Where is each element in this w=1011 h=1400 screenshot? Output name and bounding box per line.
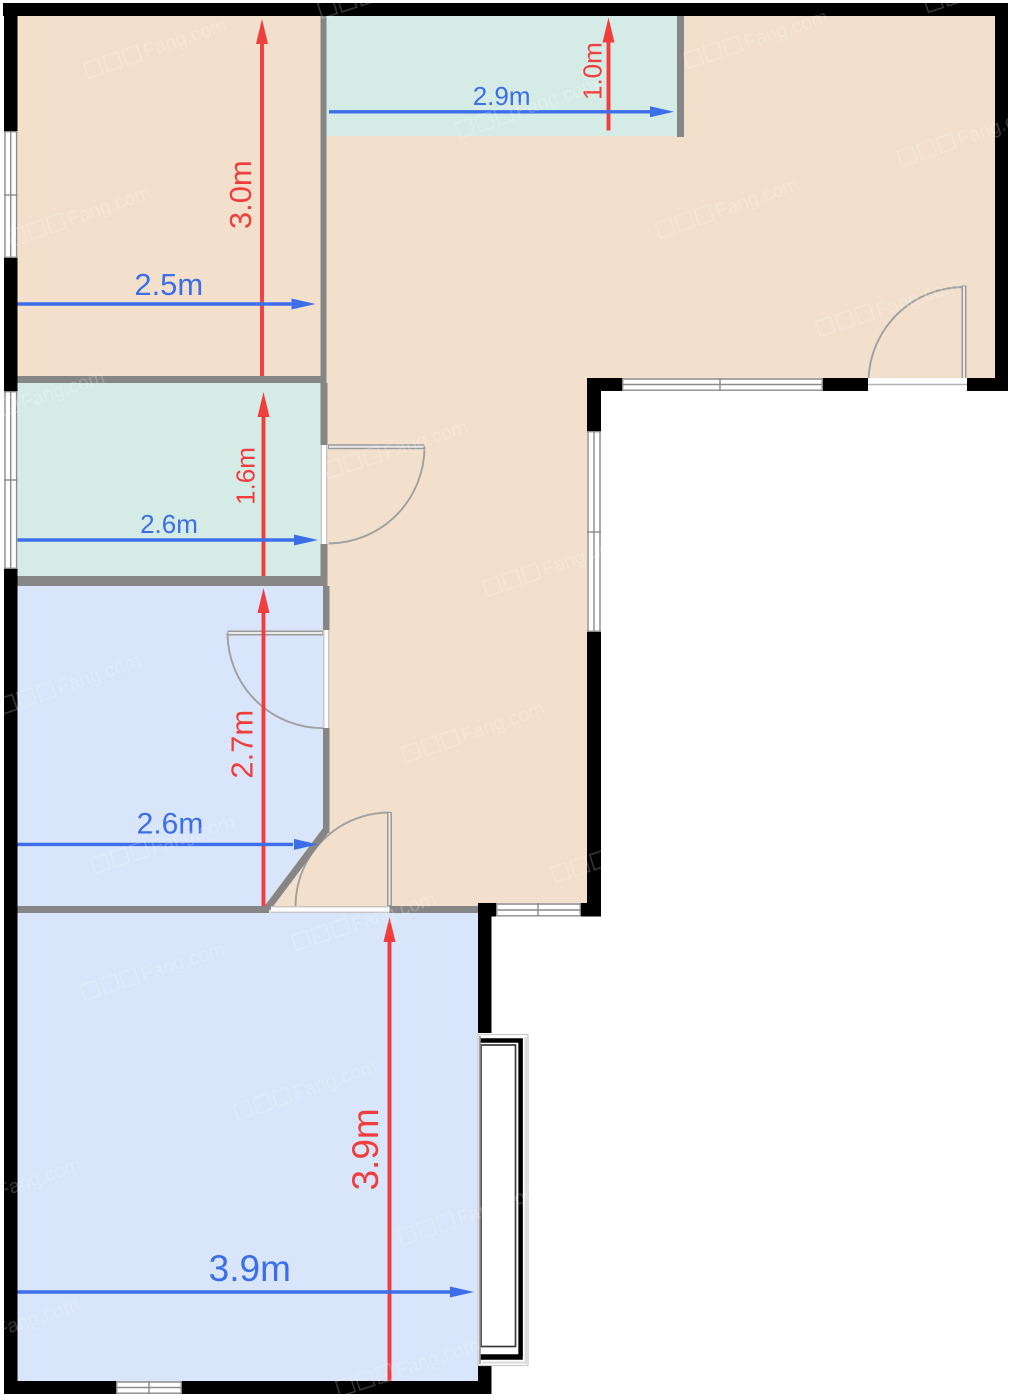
- svg-text:3.0m: 3.0m: [223, 160, 258, 229]
- svg-text:3.9m: 3.9m: [345, 1108, 386, 1190]
- svg-text:2.7m: 2.7m: [225, 710, 260, 779]
- svg-text:2.5m: 2.5m: [134, 267, 203, 302]
- svg-text:3.9m: 3.9m: [209, 1248, 291, 1289]
- svg-text:2.6m: 2.6m: [140, 509, 198, 539]
- svg-text:1.6m: 1.6m: [231, 447, 261, 505]
